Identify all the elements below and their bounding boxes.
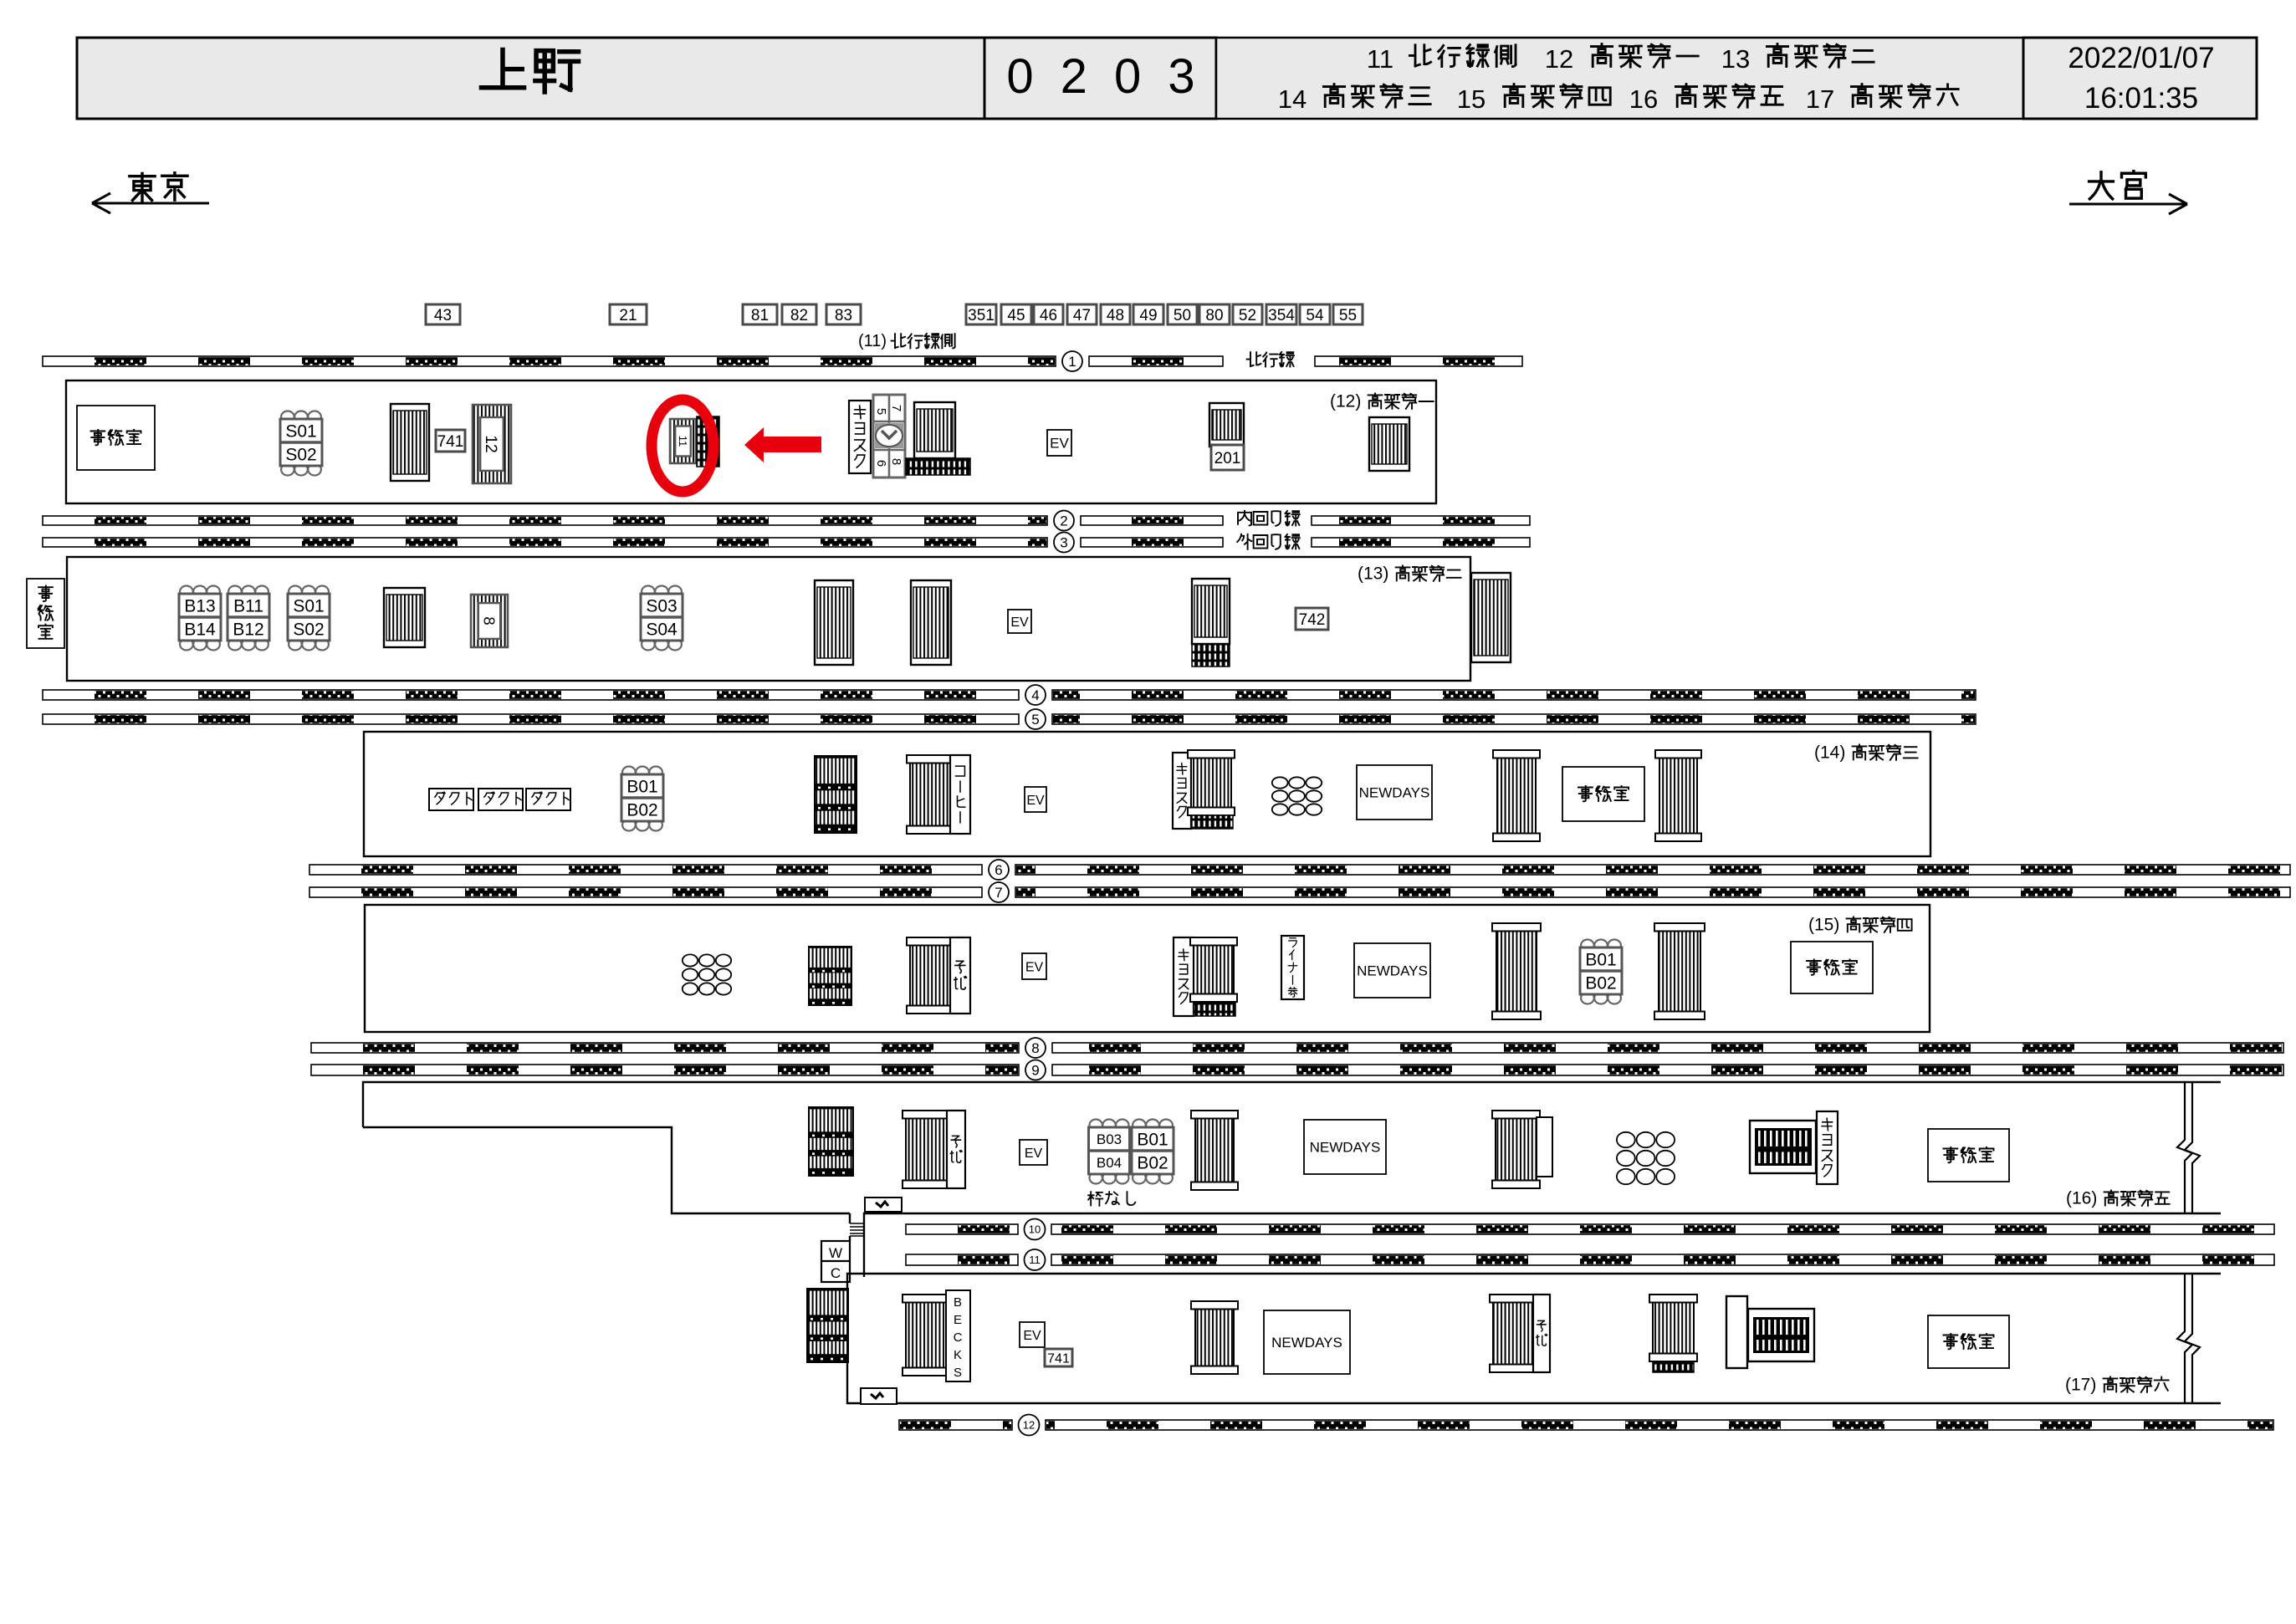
svg-text:12: 12 <box>1545 44 1573 74</box>
svg-text:K: K <box>954 1348 962 1362</box>
svg-text:S03: S03 <box>646 597 677 616</box>
svg-text:16: 16 <box>1629 84 1658 114</box>
svg-text:B13: B13 <box>184 597 215 616</box>
svg-text:NEWDAYS: NEWDAYS <box>1357 963 1428 979</box>
svg-text:201: 201 <box>1214 450 1241 467</box>
svg-text:5: 5 <box>1031 712 1039 728</box>
svg-text:11: 11 <box>677 436 689 447</box>
svg-text:12: 12 <box>1023 1419 1035 1432</box>
svg-text:S02: S02 <box>285 446 316 465</box>
svg-text:11: 11 <box>1029 1254 1041 1266</box>
svg-text:81: 81 <box>751 307 769 324</box>
svg-text:54: 54 <box>1306 307 1324 324</box>
svg-text:E: E <box>954 1313 962 1327</box>
svg-text:1: 1 <box>1068 354 1076 370</box>
svg-text:S: S <box>954 1366 962 1380</box>
svg-text:B01: B01 <box>1585 951 1616 970</box>
svg-text:0 2 0 3: 0 2 0 3 <box>1006 49 1201 104</box>
svg-text:82: 82 <box>790 307 808 324</box>
svg-text:S01: S01 <box>285 422 316 442</box>
svg-text:NEWDAYS: NEWDAYS <box>1310 1140 1381 1156</box>
svg-text:W: W <box>829 1245 842 1261</box>
svg-text:15: 15 <box>1457 84 1485 114</box>
svg-text:(17): (17) <box>2065 1375 2096 1394</box>
svg-text:EV: EV <box>1025 960 1044 974</box>
svg-text:8: 8 <box>889 458 903 465</box>
svg-text:B12: B12 <box>233 620 263 640</box>
svg-text:B11: B11 <box>233 597 263 616</box>
svg-text:50: 50 <box>1174 307 1191 324</box>
svg-text:7: 7 <box>995 885 1002 901</box>
svg-text:B02: B02 <box>1585 974 1616 993</box>
svg-text:C: C <box>954 1330 963 1345</box>
svg-text:48: 48 <box>1107 307 1124 324</box>
svg-text:47: 47 <box>1073 307 1091 324</box>
svg-text:S01: S01 <box>293 597 324 616</box>
svg-text:B02: B02 <box>626 801 657 820</box>
svg-text:NEWDAYS: NEWDAYS <box>1271 1335 1342 1351</box>
svg-text:EV: EV <box>1025 1147 1043 1161</box>
svg-text:B04: B04 <box>1097 1155 1122 1171</box>
svg-text:8: 8 <box>481 616 499 625</box>
svg-text:6: 6 <box>874 460 888 467</box>
svg-text:(16): (16) <box>2066 1188 2097 1208</box>
svg-text:13: 13 <box>1721 44 1750 74</box>
svg-text:9: 9 <box>1031 1063 1039 1079</box>
svg-text:S04: S04 <box>646 620 678 640</box>
svg-text:B01: B01 <box>626 778 657 797</box>
svg-text:(13): (13) <box>1358 564 1388 583</box>
svg-text:(11): (11) <box>858 332 887 350</box>
svg-text:B03: B03 <box>1097 1131 1122 1147</box>
svg-text:43: 43 <box>434 307 452 324</box>
svg-text:8: 8 <box>1031 1040 1039 1056</box>
svg-text:NEWDAYS: NEWDAYS <box>1359 785 1430 801</box>
svg-text:(12): (12) <box>1330 391 1361 411</box>
svg-text:(15): (15) <box>1808 915 1839 934</box>
svg-text:45: 45 <box>1007 307 1025 324</box>
svg-text:741: 741 <box>437 433 464 451</box>
svg-text:46: 46 <box>1040 307 1057 324</box>
svg-text:2: 2 <box>1060 513 1067 529</box>
svg-text:S02: S02 <box>293 620 324 640</box>
svg-text:351: 351 <box>968 307 995 324</box>
svg-text:83: 83 <box>835 307 852 324</box>
svg-text:741: 741 <box>1047 1351 1070 1366</box>
svg-text:49: 49 <box>1139 307 1157 324</box>
svg-text:21: 21 <box>619 307 637 324</box>
svg-text:B: B <box>954 1295 962 1310</box>
svg-text:C: C <box>831 1265 841 1281</box>
svg-text:742: 742 <box>1299 611 1326 629</box>
svg-text:EV: EV <box>1050 436 1069 452</box>
svg-text:(14): (14) <box>1814 743 1845 762</box>
svg-text:2022/01/07: 2022/01/07 <box>2068 42 2214 74</box>
svg-text:3: 3 <box>1060 535 1067 551</box>
svg-text:6: 6 <box>995 862 1002 878</box>
svg-text:B02: B02 <box>1137 1154 1168 1173</box>
svg-text:4: 4 <box>1031 687 1039 703</box>
svg-text:5: 5 <box>874 408 888 415</box>
svg-text:EV: EV <box>1010 615 1029 630</box>
svg-text:16:01:35: 16:01:35 <box>2084 82 2198 115</box>
svg-text:EV: EV <box>1023 1329 1041 1343</box>
svg-text:354: 354 <box>1268 307 1295 324</box>
svg-text:55: 55 <box>1339 307 1357 324</box>
svg-text:10: 10 <box>1029 1223 1041 1236</box>
svg-text:52: 52 <box>1239 307 1256 324</box>
svg-text:EV: EV <box>1026 794 1045 808</box>
svg-text:B01: B01 <box>1137 1131 1168 1150</box>
svg-text:80: 80 <box>1205 307 1223 324</box>
svg-text:B14: B14 <box>184 620 216 640</box>
svg-text:14: 14 <box>1278 84 1307 114</box>
svg-text:12: 12 <box>482 435 499 452</box>
svg-text:11: 11 <box>1367 44 1393 74</box>
svg-text:7: 7 <box>889 405 903 411</box>
svg-text:17: 17 <box>1806 84 1834 114</box>
